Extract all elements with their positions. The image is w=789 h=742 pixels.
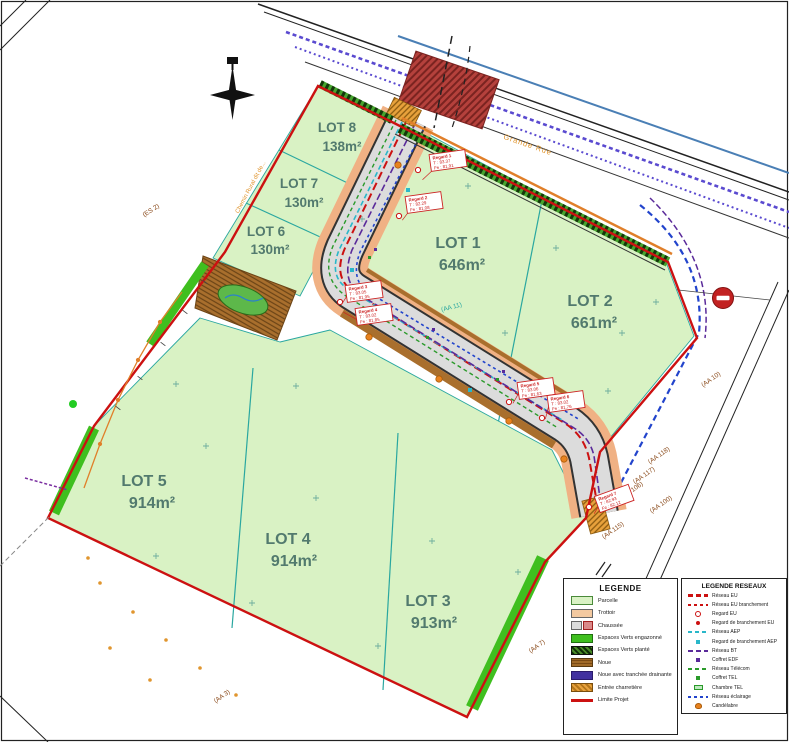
legend-item-regard-eu: Regard EU	[682, 611, 786, 618]
legend-reseaux-box: LEGENDE RESEAUX Réseau EU Réseau EU bran…	[681, 578, 787, 714]
lot-5-area: 914m²	[129, 495, 175, 512]
legend-item-reseau-telecom: Réseau Télécom	[682, 666, 786, 673]
lot-7-area: 130m²	[284, 195, 324, 210]
legend-item-entree: Entrée charretière	[564, 683, 677, 692]
regard-branchement-aep-swatch	[688, 638, 708, 645]
break-mark	[596, 562, 611, 577]
reseau-bt-swatch	[688, 647, 708, 654]
candelabre-swatch	[688, 702, 708, 709]
reseau-eclairage-swatch	[688, 693, 708, 700]
green-dot-marker	[69, 400, 77, 408]
parcel-aa10: (AA 10)	[700, 371, 722, 389]
noue-swatch	[571, 658, 593, 667]
legend-item-noue-tranchee: Noue avec tranchée drainante	[564, 671, 677, 680]
lot-1-area: 646m²	[439, 257, 485, 274]
no-entry-sign-icon	[713, 288, 734, 309]
legend-item-regard-branchement-eu: Regard de branchement EU	[682, 620, 786, 627]
legend-item-limite: Limite Projet	[564, 696, 677, 705]
lot-6-area: 130m²	[250, 242, 290, 257]
chaussee-swatch	[571, 621, 593, 630]
lot-8-label: LOT 8	[318, 120, 357, 135]
entree-swatch	[571, 683, 593, 692]
legend-item-regard-branchement-aep: Regard de branchement AEP	[682, 638, 786, 645]
legend-title: LEGENDE	[564, 584, 677, 593]
noue-tranchee-swatch	[571, 671, 593, 680]
legend-item-coffret-tel: Coffret TEL	[682, 675, 786, 682]
legend-item-ev-engazonne: Espaces Verts engazonné	[564, 634, 677, 643]
limite-projet-swatch	[571, 699, 593, 702]
lot-4-label: LOT 4	[265, 531, 310, 548]
coffret-tel-swatch	[688, 675, 708, 682]
lot-5-label: LOT 5	[121, 473, 166, 490]
legend-item-chambre-tel: Chambre TEL	[682, 684, 786, 691]
site-plan-canvas: Grande Rue	[0, 0, 789, 742]
trottoir-swatch	[571, 609, 593, 618]
lot-6-label: LOT 6	[247, 224, 286, 239]
legend-item-reseau-eu-branchement: Réseau EU branchement	[682, 601, 786, 608]
legend-item-parcelle: Parcelle	[564, 596, 677, 605]
legend-box: LEGENDE Parcelle Trottoir Chaussée Espac…	[563, 578, 678, 735]
regard-eu-swatch	[688, 611, 708, 618]
parcel-aa100: (AA 100)	[649, 495, 674, 515]
lot-7-label: LOT 7	[280, 176, 318, 191]
lot-2-area: 661m²	[571, 315, 617, 332]
legend-item-chaussee: Chaussée	[564, 621, 677, 630]
parcel-aa3: (AA 3)	[213, 689, 232, 705]
lot-3-label: LOT 3	[405, 593, 450, 610]
legend-item-coffret-edf: Coffret EDF	[682, 657, 786, 664]
legend-reseaux-title: LEGENDE RESEAUX	[682, 583, 786, 590]
legend-item-noue: Noue	[564, 658, 677, 667]
legend-item-ev-plante: Espaces Verts planté	[564, 646, 677, 655]
parcel-es2: (ES 2)	[142, 203, 161, 219]
parcel-aa118: (AA 118)	[647, 446, 671, 466]
legend-item-trottoir: Trottoir	[564, 609, 677, 618]
chambre-tel-swatch	[688, 684, 708, 691]
parcelle-swatch	[571, 596, 593, 605]
legend-item-reseau-bt: Réseau BT	[682, 647, 786, 654]
reseau-eu-swatch	[688, 592, 708, 599]
grande-rue-label: Grande Rue	[502, 132, 553, 157]
lot-4-area: 914m²	[271, 553, 317, 570]
lot-8-area: 138m²	[322, 139, 362, 154]
coffret-edf-swatch	[688, 657, 708, 664]
reseau-aep-swatch	[688, 629, 708, 636]
regard-branchement-eu-swatch	[688, 620, 708, 627]
reseau-eu-branchement-swatch	[688, 601, 708, 608]
lot-2-label: LOT 2	[567, 293, 612, 310]
parcel-aa117: (AA 117)	[632, 466, 656, 486]
reseau-telecom-swatch	[688, 666, 708, 673]
legend-item-reseau-eclairage: Réseau éclairage	[682, 693, 786, 700]
north-arrow-icon	[210, 57, 255, 120]
lot-1-label: LOT 1	[435, 235, 480, 252]
legend-item-reseau-aep: Réseau AEP	[682, 629, 786, 636]
ev-engazonne-swatch	[571, 634, 593, 643]
ev-plante-swatch	[571, 646, 593, 655]
legend-item-reseau-eu: Réseau EU	[682, 592, 786, 599]
parcel-aa7: (AA 7)	[528, 639, 547, 655]
lot-3-area: 913m²	[411, 615, 457, 632]
legend-item-candelabre: Candélabre	[682, 702, 786, 709]
